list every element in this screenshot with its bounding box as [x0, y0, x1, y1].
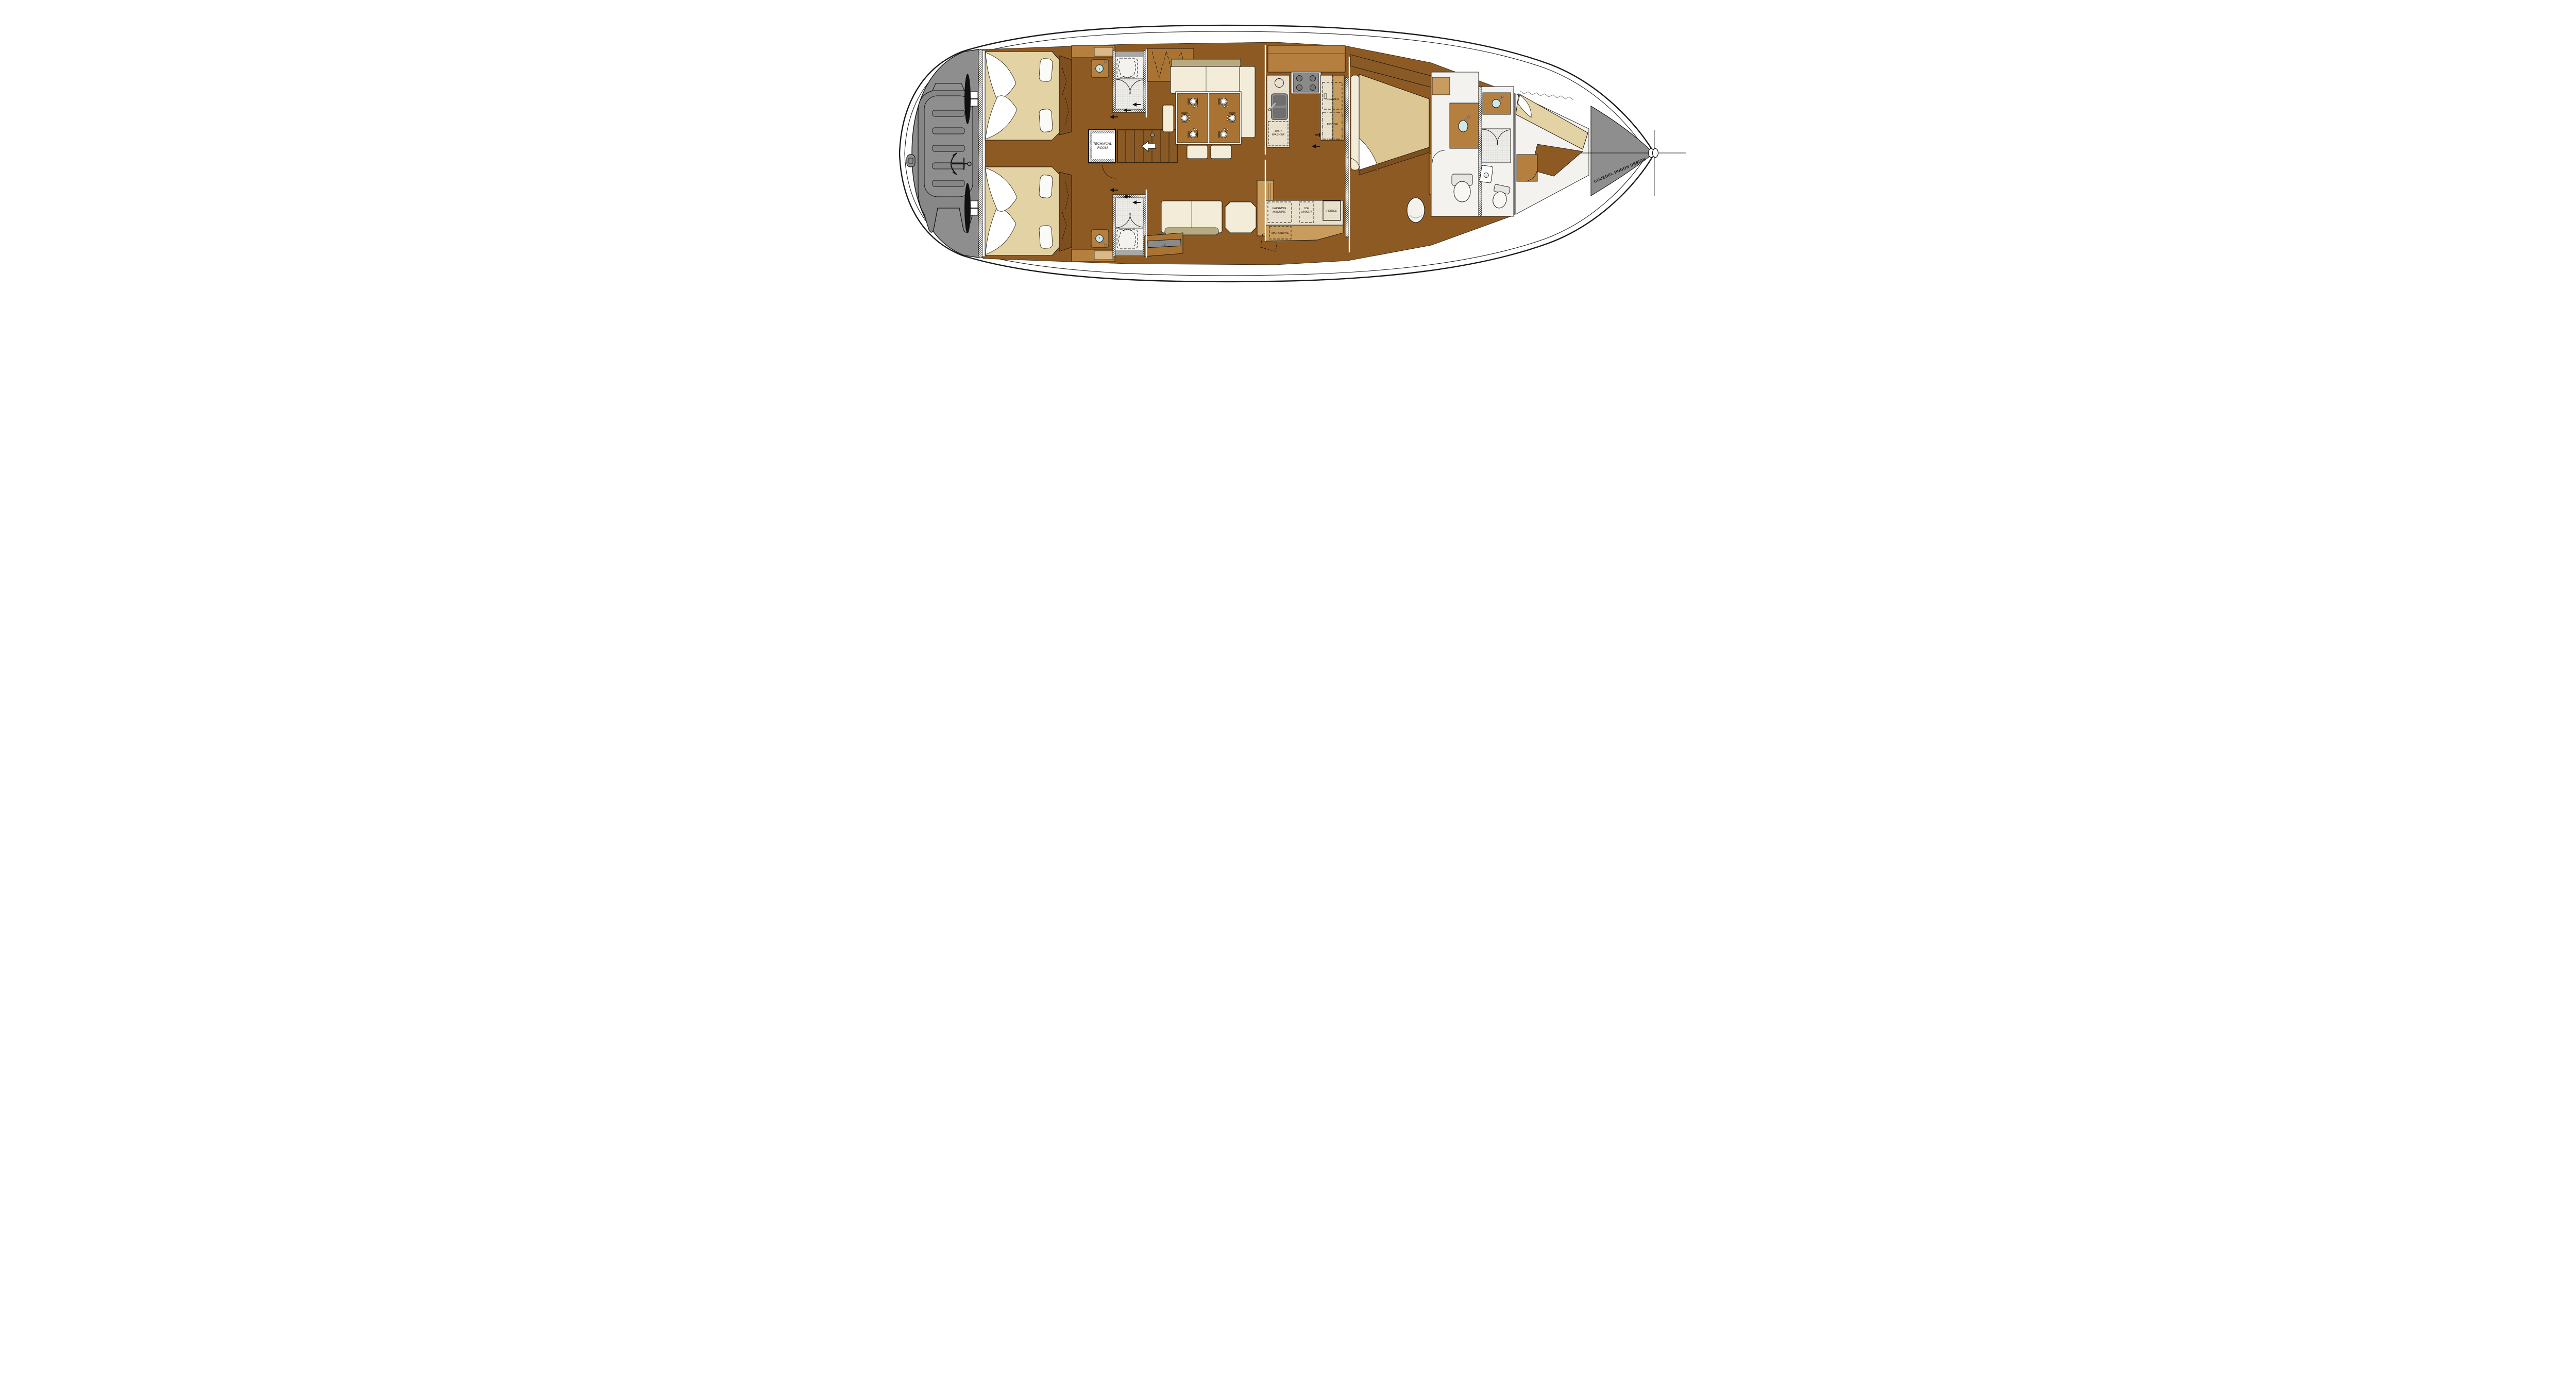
garage-bulkhead	[978, 49, 982, 258]
saloon-dining	[1163, 59, 1255, 159]
pillow	[1039, 58, 1053, 82]
owner-head	[1431, 72, 1479, 216]
berth-headboard	[1059, 56, 1072, 135]
yacht-floorplan-page: TECHNICALROOM	[884, 0, 1692, 286]
freezer-label: FREEZER	[1326, 98, 1339, 101]
shower-floor	[1482, 129, 1511, 163]
owner-pillow-band	[1351, 75, 1359, 170]
galley-fwd-bulkhead	[1345, 77, 1349, 237]
vanity-desk	[1094, 251, 1113, 260]
washing-machine-label: WASHINGMACHINE	[1273, 207, 1286, 214]
stool	[1211, 145, 1231, 159]
tender-garage	[907, 49, 980, 258]
yacht-floorplan-drawing: TECHNICALROOM	[884, 0, 1692, 286]
seat-pouf	[1407, 198, 1425, 223]
garage-bulkhead-gap	[982, 50, 985, 257]
dining-table	[1176, 92, 1241, 144]
mast-post	[1150, 133, 1154, 137]
companionway-stairs	[1117, 130, 1177, 163]
ottoman	[1225, 202, 1256, 233]
bench-seat	[1163, 105, 1174, 132]
settee-side	[1240, 66, 1255, 138]
stool	[1187, 145, 1208, 159]
pillow	[1039, 175, 1053, 198]
transom-hatch-handle	[907, 155, 915, 167]
fwd-basin-icon	[1480, 165, 1493, 183]
settee-back	[1172, 59, 1241, 66]
pillow	[1039, 109, 1053, 132]
vanity-desk	[1094, 47, 1113, 56]
head-starboard	[1113, 194, 1146, 257]
ensuite-shelf	[1432, 77, 1450, 95]
galley-starboard-units: FREEZER FRIDGE	[1320, 75, 1344, 140]
fridge-upper-label: FRIDGE	[1327, 123, 1337, 126]
forward-head	[1479, 87, 1514, 216]
forestay-fitting-icon	[1649, 149, 1658, 158]
galley-sink-icon	[1268, 94, 1287, 120]
head-port	[1113, 50, 1146, 113]
dinghy-transom	[933, 83, 964, 91]
galley-top-cabinets	[1268, 45, 1345, 72]
utility-counter: WASHINGMACHINE ICEMAKER FRIDGE MICROWAVE	[1266, 200, 1343, 241]
stove-icon	[1291, 72, 1321, 94]
galley-port-counter: DISHWASHER	[1267, 75, 1290, 147]
pillow	[1039, 225, 1053, 249]
forepeak-cabinet	[1517, 155, 1537, 181]
microwave-label: MICROWAVE	[1272, 232, 1290, 235]
fridge-lower-label: FRIDGE	[1326, 210, 1337, 213]
berth-headboard	[1059, 172, 1072, 251]
technical-room: TECHNICALROOM	[1089, 130, 1115, 163]
tv-cabinet: TV	[1144, 233, 1183, 257]
